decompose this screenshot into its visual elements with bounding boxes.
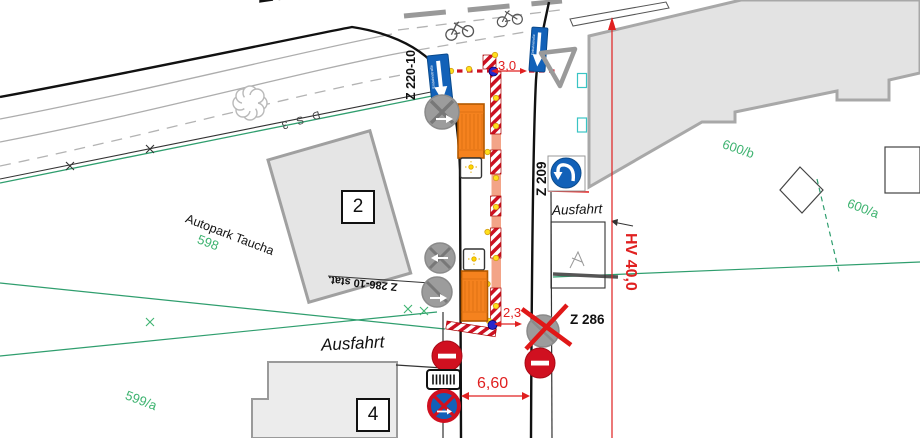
- utility-box-icon: [578, 74, 587, 88]
- exit-label-right: Ausfahrt: [552, 202, 603, 217]
- small-structure: [885, 147, 920, 193]
- safety-vehicle-icon: [462, 249, 488, 321]
- tree-icon: [233, 86, 267, 120]
- sign-label-z286: Z 286: [570, 313, 605, 327]
- building-number: 4: [368, 404, 379, 426]
- barrier-plate-icon: [427, 370, 460, 389]
- dim-width-top: 3,0: [498, 59, 516, 72]
- dim-haltverbot: HV 40,0: [622, 233, 638, 291]
- turn-left-sign: [548, 156, 585, 191]
- dim-road-width: 6,60: [477, 376, 508, 392]
- tree-sketch: [570, 252, 584, 268]
- plan-drawing: Einbahnstraße Einbahnstraße: [0, 0, 920, 438]
- one-way-sign: Einbahnstraße: [529, 27, 548, 72]
- sign-label-z220: Z 220-10: [405, 50, 418, 100]
- yield-triangle-icon: [541, 49, 575, 86]
- exit-label-bottom: Ausfahrt: [321, 333, 385, 353]
- bicycle-icon: [496, 9, 523, 28]
- crossed-out-sign: [425, 95, 459, 129]
- dim-width-bottom: 2,3: [503, 306, 521, 319]
- diamond-structure: [780, 167, 823, 213]
- utility-box-icon: [578, 118, 587, 132]
- center-line-dashes: [404, 1, 562, 16]
- marker-dot: [488, 321, 497, 330]
- building-number: 2: [353, 196, 364, 218]
- traffic-plan-canvas: Einbahnstraße Einbahnstraße: [0, 0, 920, 438]
- crossed-out-sign: [425, 243, 455, 273]
- removed-no-stopping-sign: [522, 305, 571, 349]
- crossed-out-sign: [422, 277, 452, 307]
- sign-label-z209: Z 209: [535, 161, 549, 196]
- building-4-label: 4: [356, 398, 390, 432]
- no-entry-sign: [525, 348, 555, 378]
- no-stopping-sign: [429, 391, 459, 421]
- no-entry-sign: [432, 341, 462, 371]
- safety-vehicle-icon: [458, 104, 484, 178]
- courtyard-outline: [551, 222, 605, 288]
- building-2-label: 2: [341, 190, 375, 224]
